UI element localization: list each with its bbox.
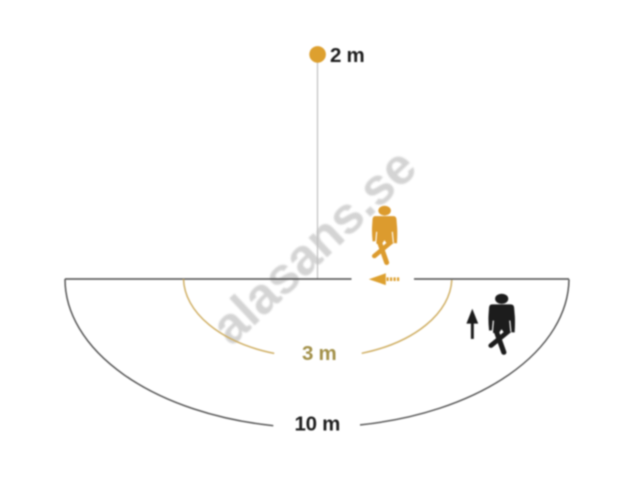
svg-text:3 m: 3 m (302, 342, 336, 365)
svg-text:10 m: 10 m (295, 412, 341, 435)
svg-text:2 m: 2 m (330, 44, 364, 67)
